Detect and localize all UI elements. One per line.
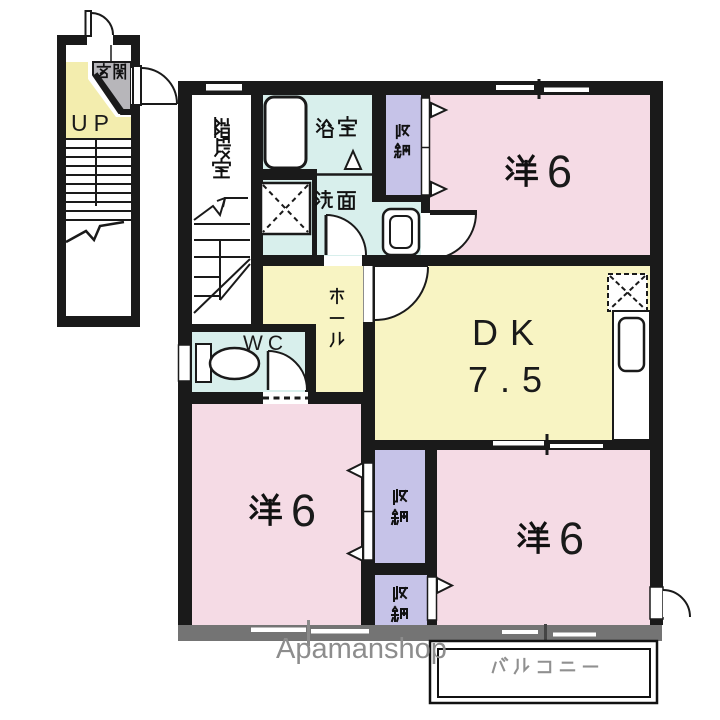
svg-text:6: 6	[547, 146, 572, 197]
svg-text:WC: WC	[243, 332, 288, 355]
svg-text:6: 6	[291, 485, 316, 536]
svg-text:Apamanshop: Apamanshop	[276, 633, 447, 665]
svg-text:7.5: 7.5	[468, 359, 554, 400]
svg-text:UP: UP	[71, 110, 115, 136]
svg-text:DK: DK	[472, 312, 546, 353]
svg-text:6: 6	[559, 513, 584, 564]
